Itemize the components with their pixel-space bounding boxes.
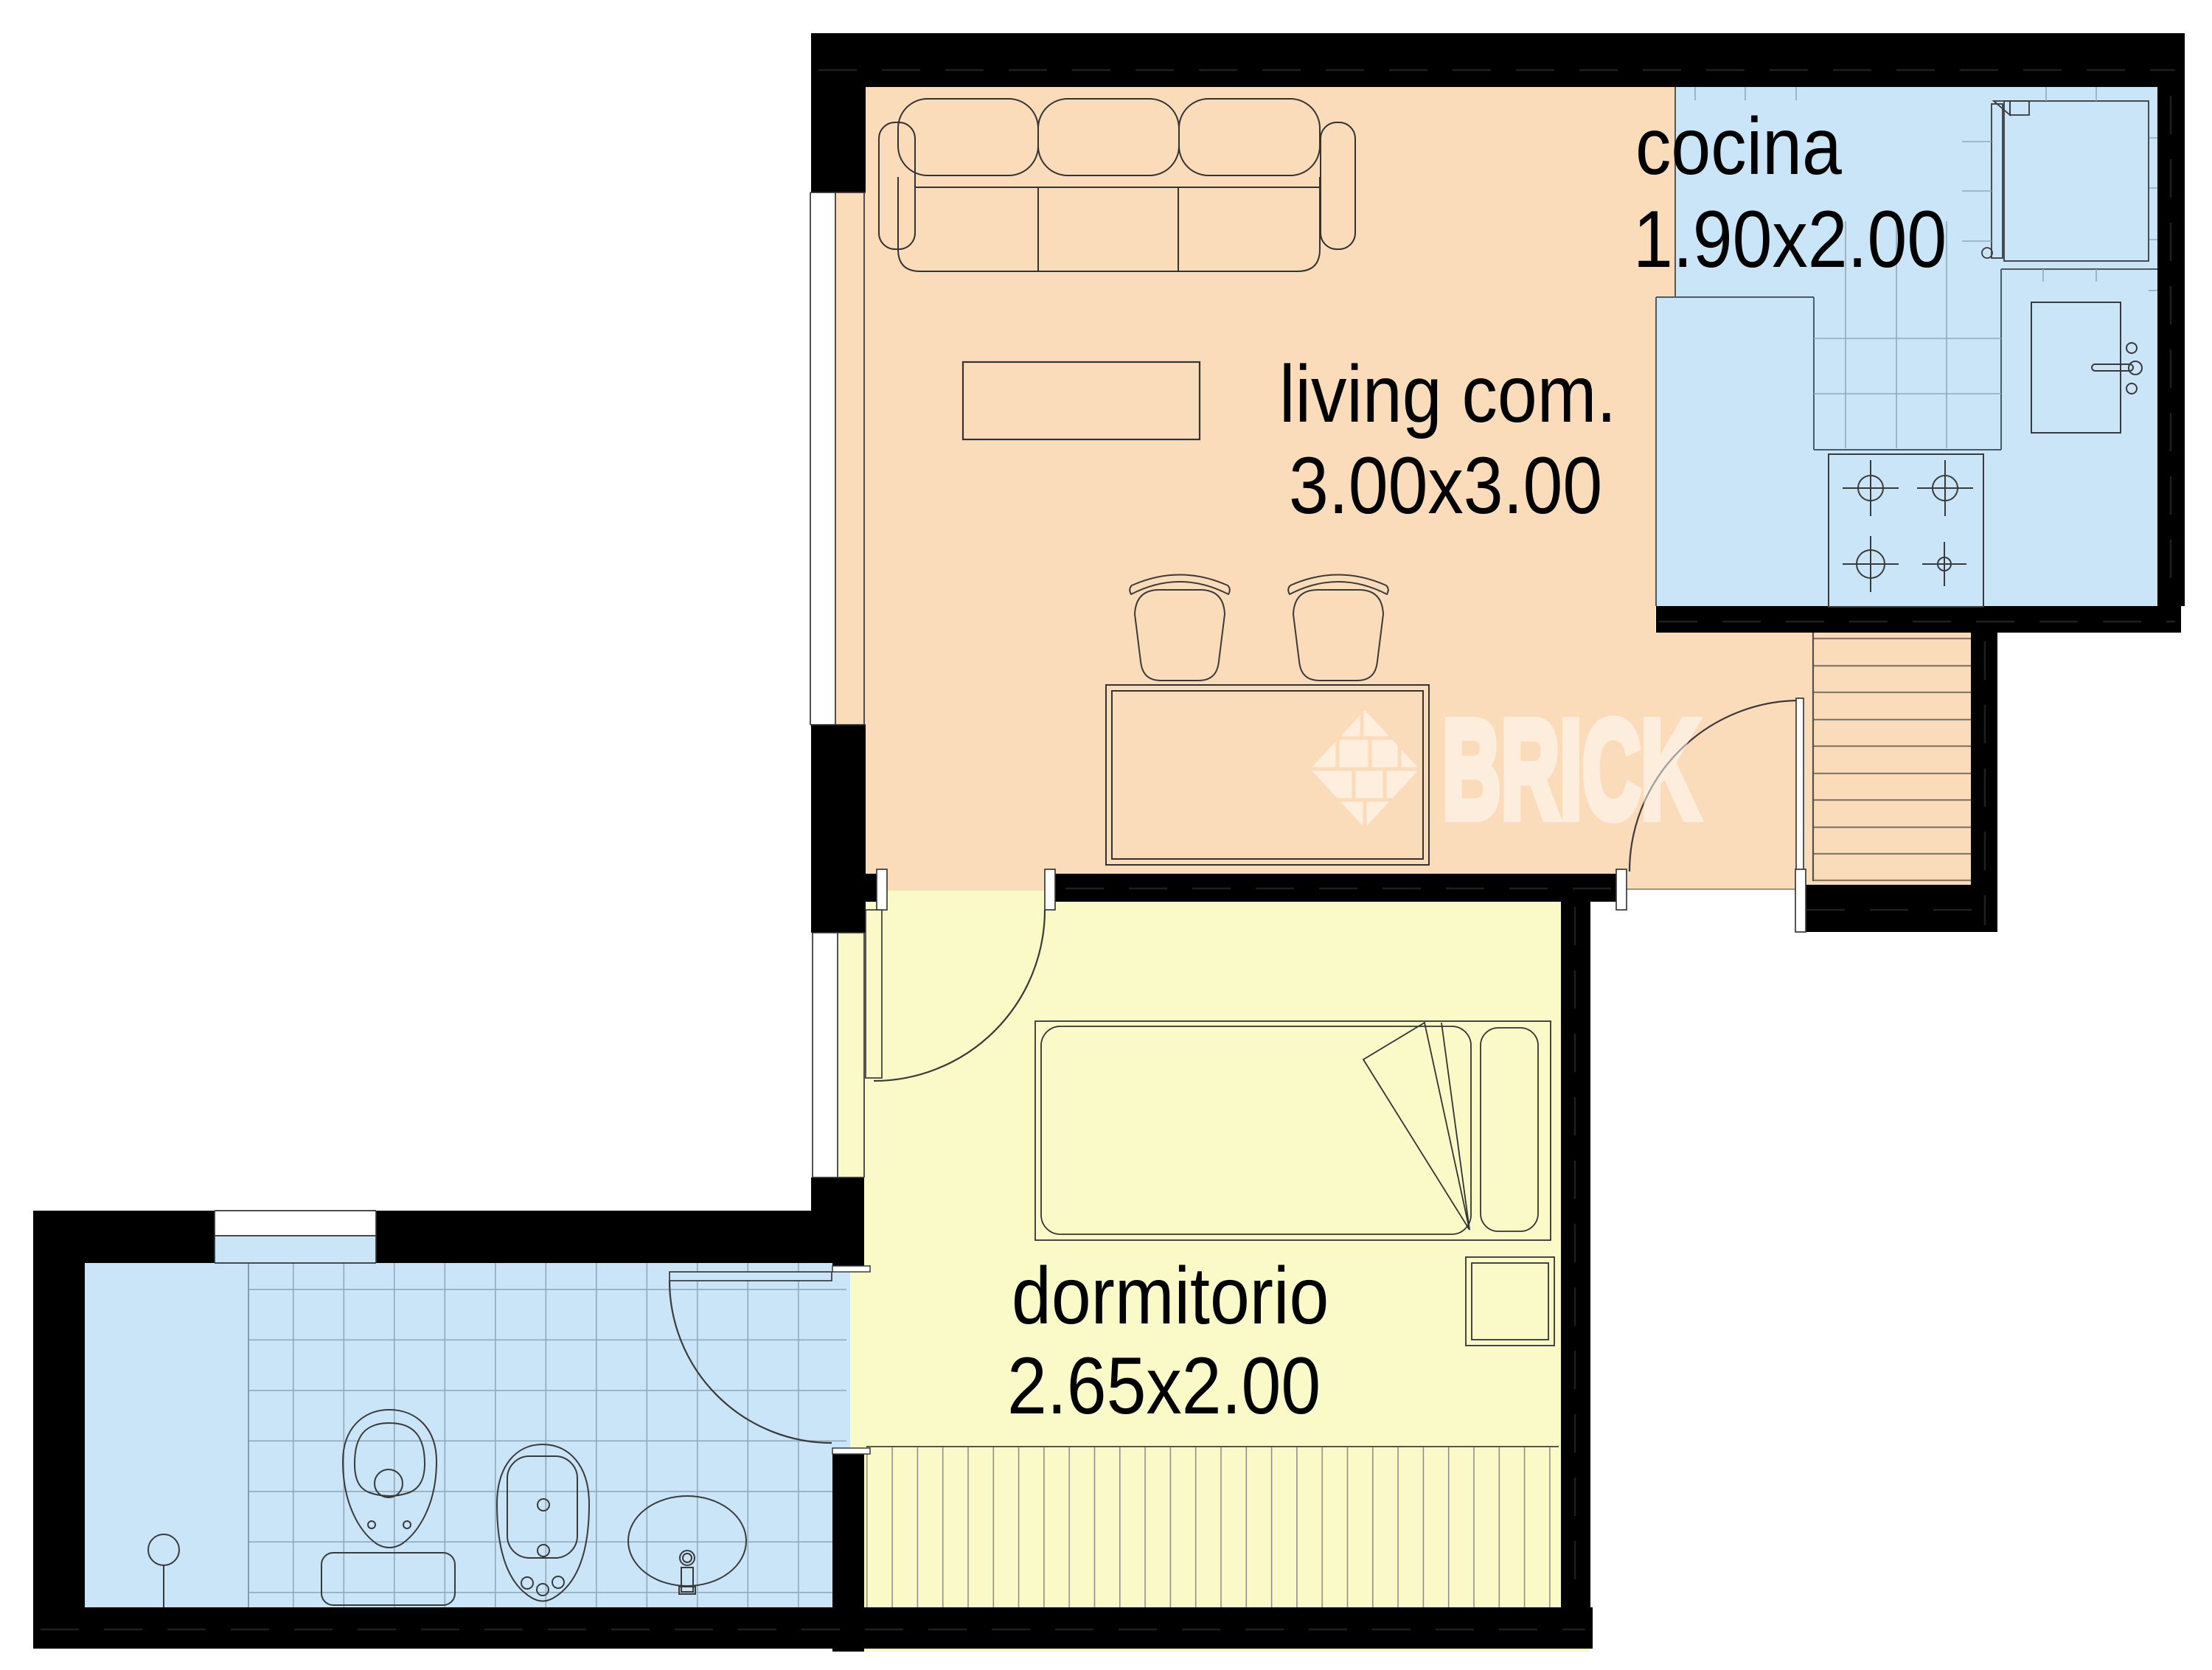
svg-text:cocina: cocina [1635,100,1842,191]
svg-text:2.65x2.00: 2.65x2.00 [1007,1340,1321,1430]
svg-text:BRICK: BRICK [1442,691,1700,848]
svg-text:dormitorio: dormitorio [1012,1250,1329,1340]
svg-text:3.00x3.00: 3.00x3.00 [1289,439,1602,530]
svg-text:living com.: living com. [1279,348,1616,439]
svg-text:1.90x2.00: 1.90x2.00 [1633,193,1947,284]
